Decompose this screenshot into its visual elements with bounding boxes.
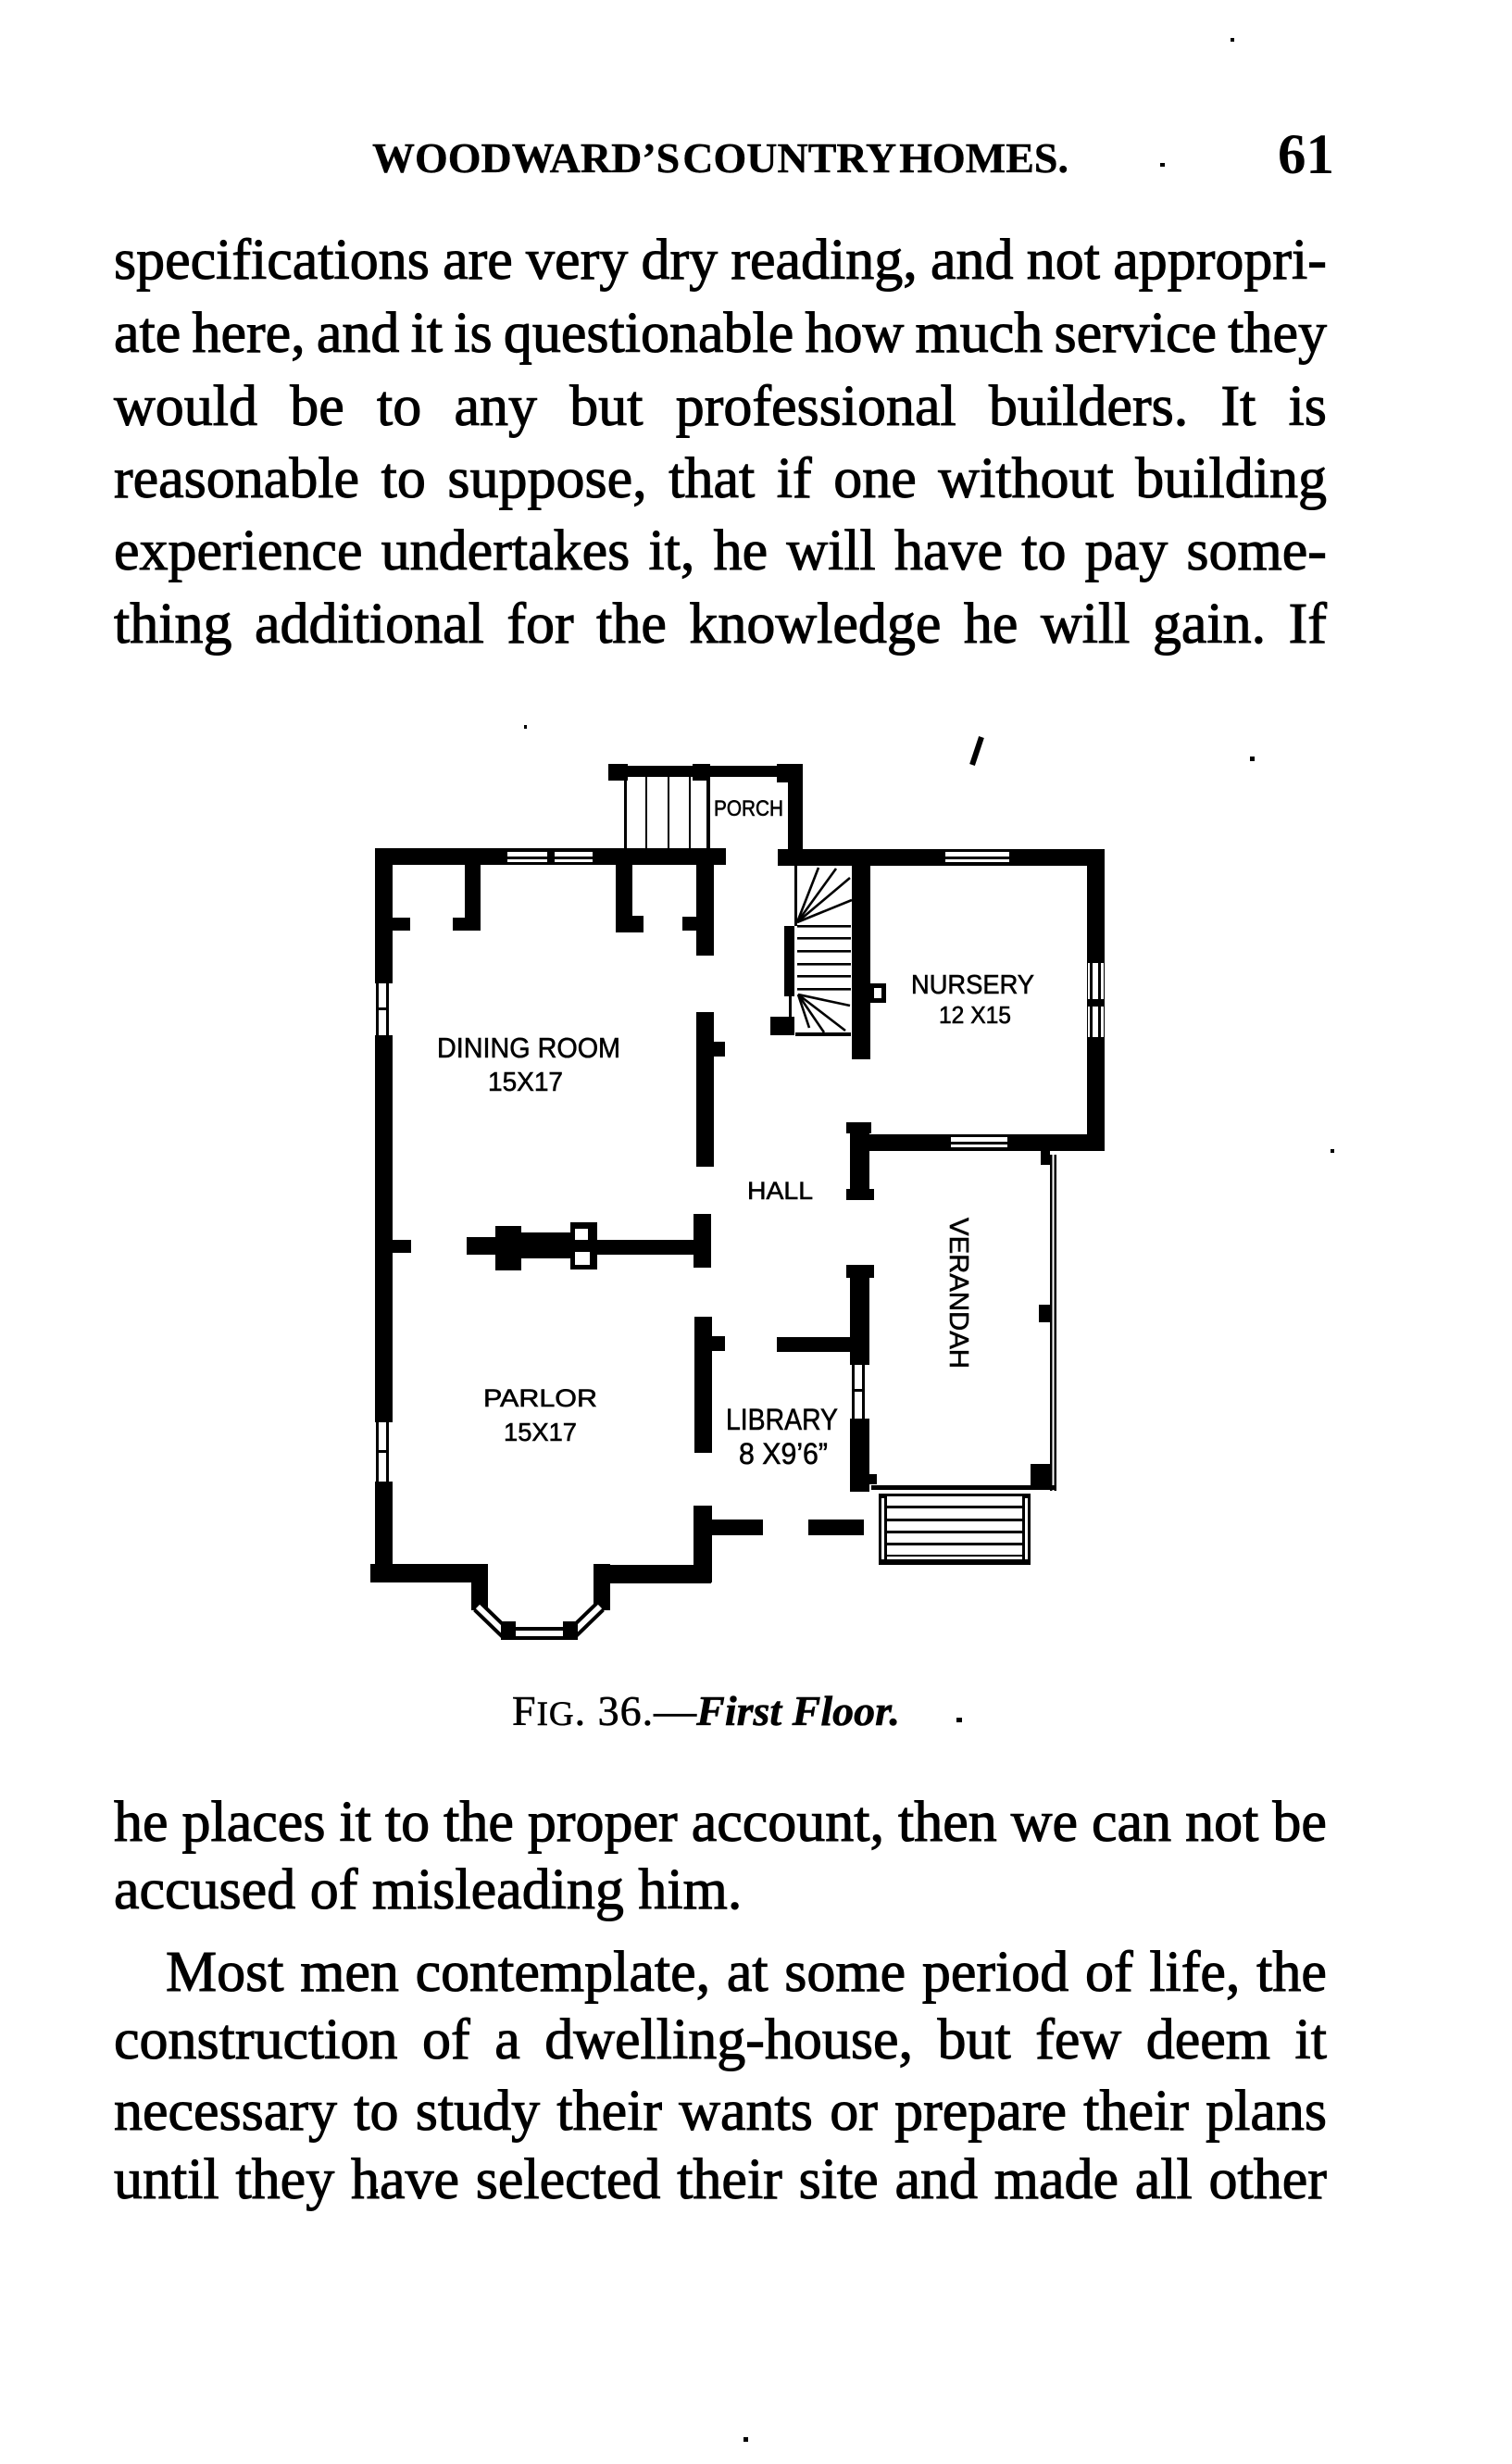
svg-text:PORCH: PORCH <box>714 796 783 821</box>
svg-text:12 X15: 12 X15 <box>939 1001 1011 1029</box>
svg-text:8 X9’6”: 8 X9’6” <box>739 1437 828 1470</box>
svg-text:VERANDAH: VERANDAH <box>943 1218 973 1369</box>
svg-text:LIBRARY: LIBRARY <box>726 1403 838 1436</box>
svg-text:DINING ROOM: DINING ROOM <box>437 1032 620 1064</box>
svg-text:PARLOR: PARLOR <box>483 1384 597 1412</box>
svg-text:NURSERY: NURSERY <box>911 970 1034 1000</box>
svg-text:HALL: HALL <box>747 1177 813 1205</box>
svg-text:15X17: 15X17 <box>504 1418 577 1446</box>
svg-text:15X17: 15X17 <box>488 1068 563 1097</box>
